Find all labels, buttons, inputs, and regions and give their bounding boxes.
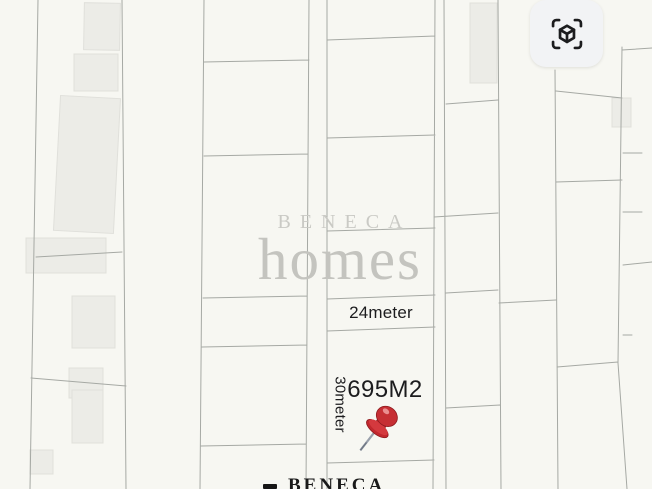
plot-area-label: 695M2	[340, 376, 430, 404]
map-canvas[interactable]	[0, 0, 652, 489]
parcel-map-svg	[0, 0, 652, 489]
plot-depth-label: 30meter	[332, 375, 349, 435]
plot-width-label: 24meter	[327, 303, 435, 323]
cube-scan-icon	[548, 15, 586, 53]
view-3d-button[interactable]	[530, 0, 603, 67]
red-pushpin-icon[interactable]	[350, 401, 403, 458]
screen: BENECA homes 24meter 695M2 30meter BENEC…	[0, 0, 652, 489]
footer-logo: BENECA	[263, 476, 385, 489]
footer-logo-text: BENECA	[288, 476, 385, 489]
building-footprints	[26, 3, 631, 474]
footer-logo-dash	[263, 484, 277, 489]
